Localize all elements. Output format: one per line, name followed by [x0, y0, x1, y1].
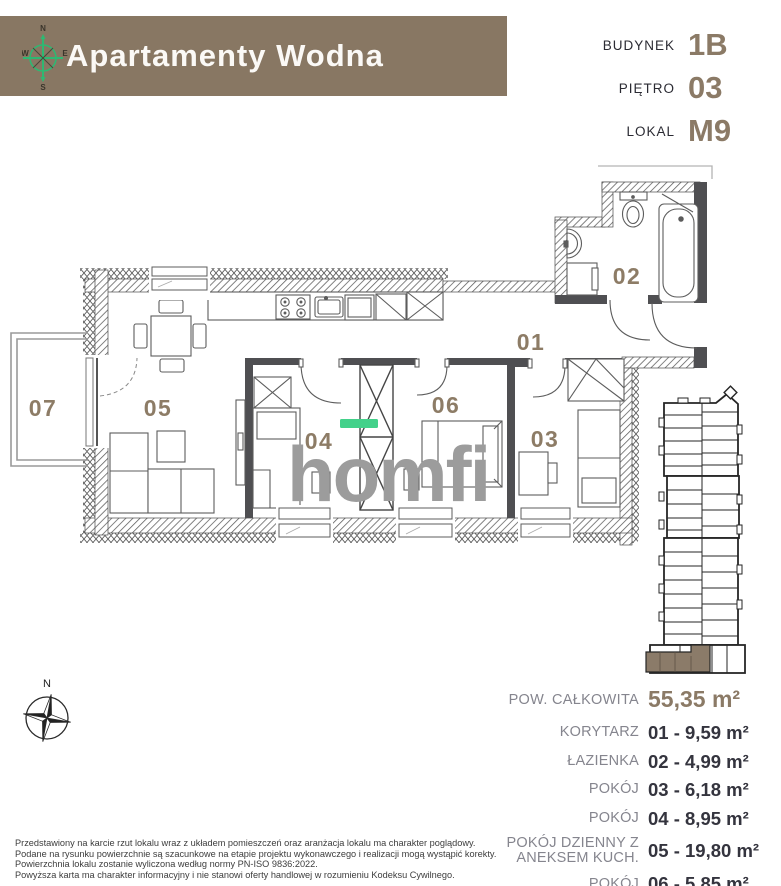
- unit-info: BUDYNEK 1B PIĘTRO 03 LOKAL M9: [556, 26, 748, 155]
- entrance-opening: [694, 303, 707, 347]
- washing-machine-icon: [567, 263, 598, 295]
- neighbor-slab-line: [598, 166, 712, 179]
- compass-s-label: S: [40, 83, 46, 92]
- area-label-pokoj-03: POKÓJ: [498, 782, 639, 797]
- fridge-icon: [345, 295, 374, 320]
- unit-label: LOKAL: [626, 124, 675, 139]
- coffee-table: [157, 431, 185, 462]
- area-value-03: 03 - 6,18 m²: [648, 779, 754, 801]
- tv-screen: [238, 433, 243, 450]
- toilet-icon: [620, 192, 647, 227]
- compass-north-label: N: [43, 678, 51, 690]
- area-label-pokoj-06: POKÓJ: [498, 877, 639, 886]
- compass-w-label: W: [22, 49, 29, 58]
- area-label-korytarz: KORYTARZ: [498, 725, 639, 740]
- desk: [519, 452, 548, 495]
- kitchen: [208, 292, 443, 320]
- kitchen-sink-icon: [315, 297, 343, 318]
- total-area-row: POW. CAŁKOWITA 55,35 m²: [498, 686, 754, 713]
- room-label-01: 01: [517, 329, 546, 355]
- disclaimer-line-3: Powierzchnia lokalu zostanie wyliczona w…: [15, 859, 496, 870]
- disclaimer-line-1: Przedstawiony na karcie rzut lokalu wraz…: [15, 838, 496, 849]
- area-value-04: 04 - 8,95 m²: [648, 808, 754, 830]
- room-label-05: 05: [144, 395, 173, 421]
- dining-table: [134, 300, 206, 372]
- area-label-lazienka: ŁAZIENKA: [498, 754, 639, 769]
- cabinet-icon: [376, 294, 406, 320]
- apartment-card: N S W E Apartamenty Wodna BUDYNEK 1B PIĘ…: [0, 0, 781, 886]
- site-plan: [646, 386, 745, 673]
- area-value-06: 06 - 5,85 m²: [648, 873, 754, 886]
- room-label-07: 07: [29, 395, 58, 421]
- door-room03: [533, 365, 565, 397]
- area-value-01: 01 - 9,59 m²: [648, 722, 754, 744]
- compass-n-label: N: [40, 24, 46, 33]
- area-value-02: 02 - 4,99 m²: [648, 751, 754, 773]
- homfi-accent-bar: [340, 419, 378, 428]
- bathtub-icon: [659, 204, 698, 302]
- bathroom-sink-icon: [564, 229, 582, 258]
- area-value-05: 05 - 19,80 m²: [648, 840, 754, 862]
- header-compass-icon: N S W E: [22, 20, 68, 92]
- compass-rose-icon: N: [16, 673, 80, 751]
- floor-plan: 07 05 04 06 03 01 02: [0, 155, 781, 700]
- unit-info-floor: PIĘTRO 03: [556, 69, 748, 107]
- unit-value: M9: [688, 113, 748, 149]
- area-label-pokoj-04: POKÓJ: [498, 811, 639, 826]
- desk-chair: [548, 463, 557, 483]
- unit-info-building: BUDYNEK 1B: [556, 26, 748, 64]
- bed-icon: [578, 410, 620, 507]
- kitchen-shaft-icon: [407, 292, 443, 320]
- room-label-03: 03: [531, 426, 560, 452]
- room-label-06: 06: [432, 392, 461, 418]
- total-area-value: 55,35 m²: [648, 686, 754, 713]
- total-area-label: POW. CAŁKOWITA: [498, 692, 639, 708]
- window-top: [149, 262, 210, 300]
- disclaimer-line-2: Podane na rysunku powierzchnie są szacun…: [15, 849, 496, 860]
- wardrobe-icon: [254, 377, 291, 408]
- disclaimer: Przedstawiony na karcie rzut lokalu wraz…: [15, 838, 496, 881]
- room-label-02: 02: [613, 263, 642, 289]
- building-label: BUDYNEK: [603, 38, 675, 53]
- disclaimer-line-4: Powyższa karta ma charakter informacyjny…: [15, 870, 496, 881]
- door-entrance: [652, 303, 697, 348]
- areas-table: POW. CAŁKOWITA 55,35 m² KORYTARZ 01 - 9,…: [498, 686, 754, 886]
- stove-icon: [276, 295, 310, 319]
- header-banner: N S W E Apartamenty Wodna: [0, 16, 507, 96]
- window-room03: [518, 505, 573, 547]
- door-room04: [301, 363, 341, 403]
- building-value: 1B: [688, 27, 748, 63]
- homfi-watermark: homfi: [287, 419, 489, 518]
- corridor-wardrobe-icon: [568, 359, 624, 401]
- homfi-logo: homfi: [287, 430, 489, 518]
- unit-info-unit: LOKAL M9: [556, 112, 748, 150]
- page-title: Apartamenty Wodna: [66, 16, 384, 96]
- floor-label: PIĘTRO: [619, 81, 675, 96]
- door-bathroom: [610, 300, 650, 340]
- area-label-pokoj-dzienny: POKÓJ DZIENNY Z ANEKSEM KUCH.: [498, 836, 639, 867]
- floor-value: 03: [688, 70, 748, 106]
- door-room06: [417, 365, 447, 395]
